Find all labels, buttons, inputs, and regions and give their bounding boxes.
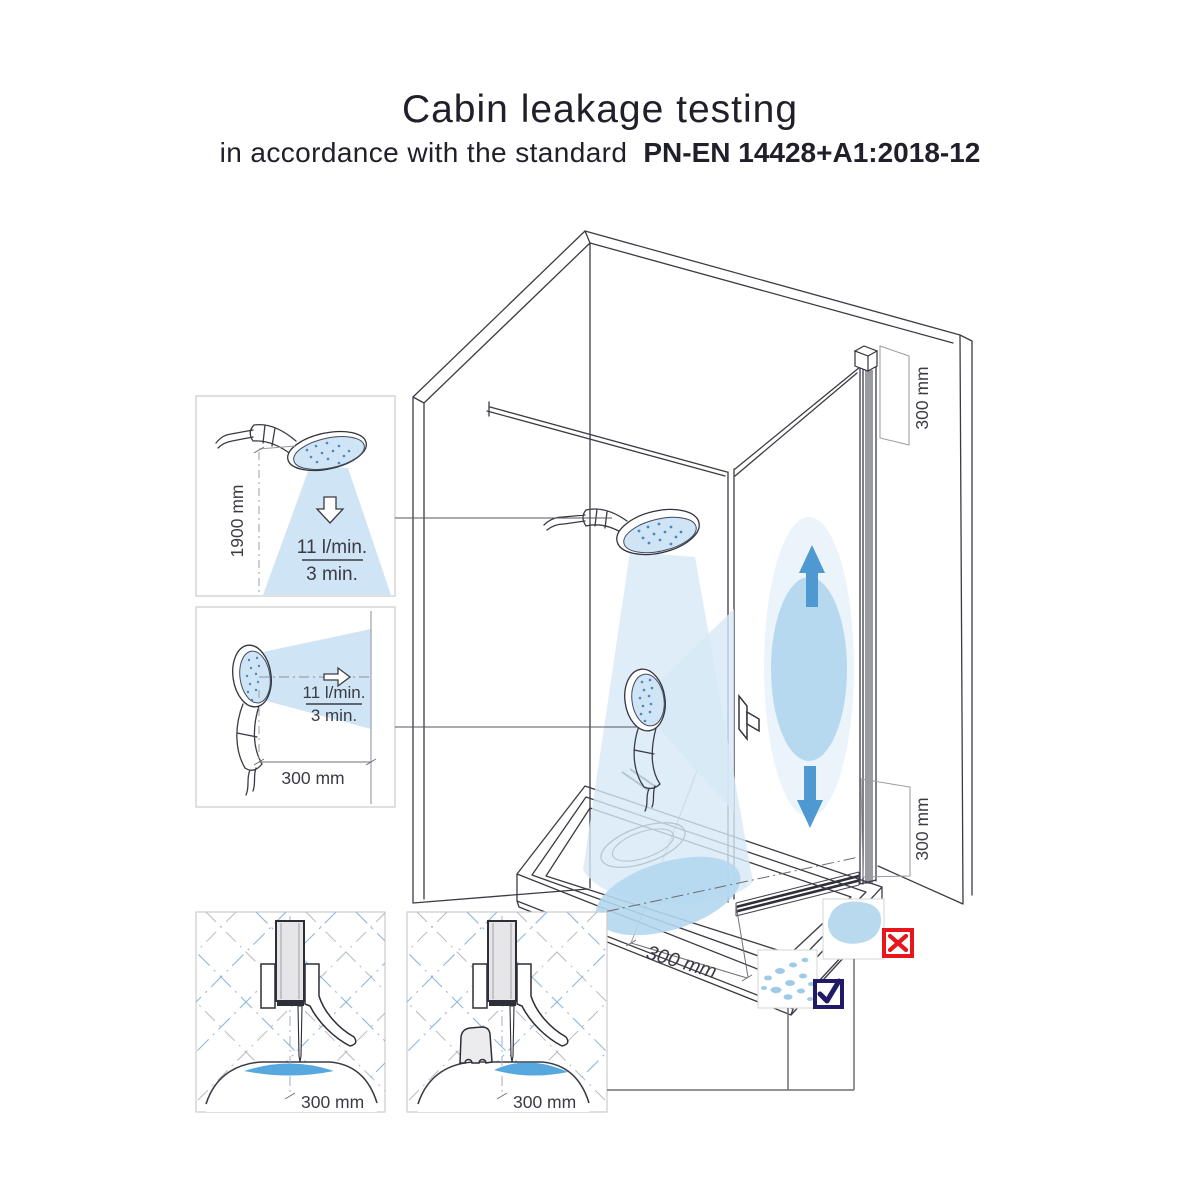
- flow-rate-label: 11 l/min.: [303, 683, 366, 702]
- door-top-dim-label: 300 mm: [912, 366, 932, 429]
- page: Cabin leakage testing in accordance with…: [0, 0, 1200, 1200]
- seal2-dim-label: 300 mm: [513, 1092, 576, 1112]
- left-wall: [413, 231, 590, 903]
- distance-dim-label: 300 mm: [281, 768, 344, 788]
- pass-check-icon: [815, 981, 842, 1007]
- outside-puddle-callout: [823, 899, 912, 959]
- diagram-canvas: 300 mm 300 mm: [0, 0, 1200, 1200]
- fail-cross-icon: [884, 930, 912, 956]
- leak-puddle: [828, 902, 881, 944]
- dimension-300mm-door-top: 300 mm: [880, 346, 932, 445]
- wall-profile-cap: [855, 346, 877, 371]
- flow-rate-label: 11 l/min.: [297, 537, 367, 558]
- tray-dim-label: 300 mm: [644, 942, 720, 984]
- height-dim-label: 1900 mm: [227, 485, 247, 558]
- overhead-shower-head: [544, 502, 704, 562]
- door-bottom-dim-label: 300 mm: [912, 797, 932, 860]
- duration-label: 3 min.: [311, 706, 357, 725]
- inset-horizontal-spray: 11 l/min. 3 min. 300 mm: [196, 607, 395, 807]
- inset2-flow-spec: 11 l/min. 3 min.: [303, 683, 366, 725]
- seal1-dim-label: 300 mm: [301, 1092, 364, 1112]
- door-handle: [739, 696, 759, 739]
- threshold-profile: [460, 1027, 492, 1063]
- wall-profile: [855, 346, 877, 884]
- duration-label: 3 min.: [306, 564, 358, 585]
- inset-vertical-spray: 11 l/min. 3 min. 1900 mm: [196, 396, 395, 596]
